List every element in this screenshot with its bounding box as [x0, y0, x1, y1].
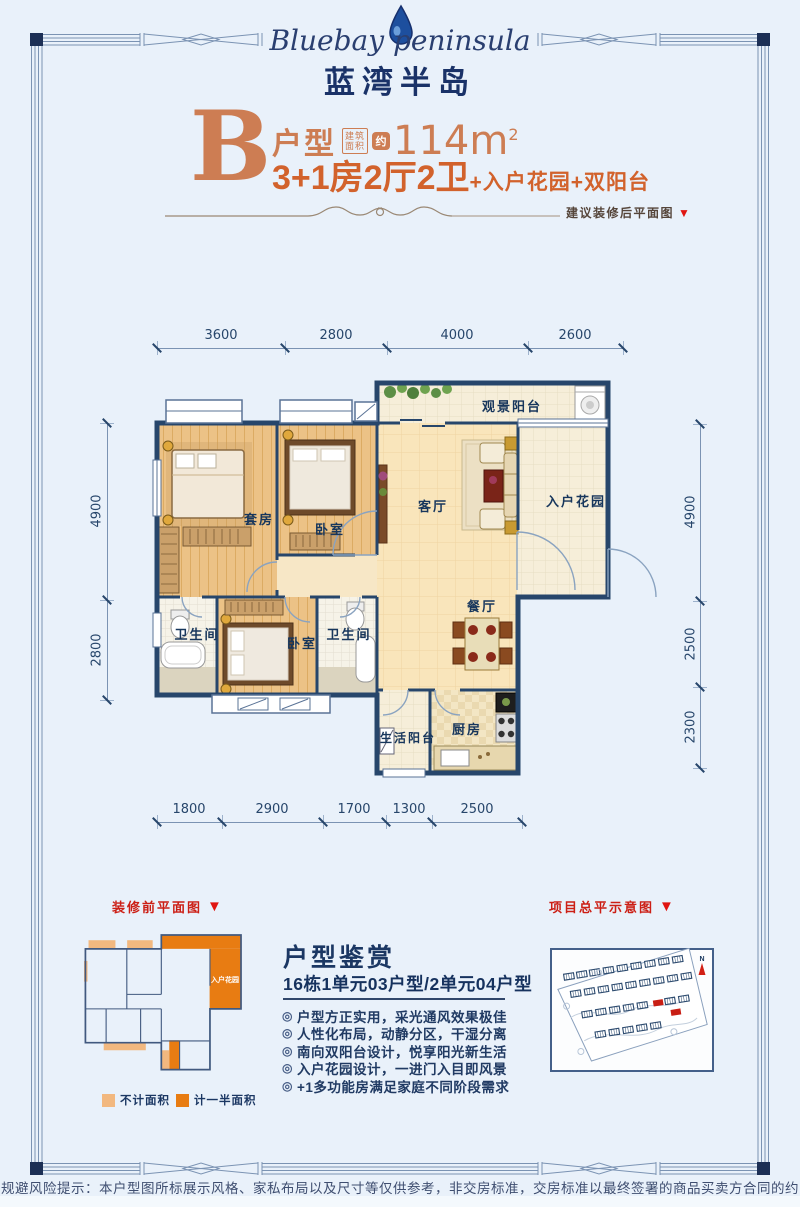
bullet-icon: ◎ [282, 1009, 293, 1023]
logo-chinese: 蓝湾半岛 [324, 57, 476, 102]
mini-floor-plan: 入户花园 [80, 930, 270, 1080]
master-plan-text: 项目总平示意图 [549, 897, 654, 916]
appreciation-title: 户型鉴赏 [283, 938, 395, 974]
bullet-item: ◎+1多功能房满足家庭不同阶段需求 [282, 1077, 509, 1095]
unit-title-line2: 3+1房2厅2卫 +入户花园+双阳台 [272, 150, 650, 199]
legend-label: 计一半面积 [194, 1092, 257, 1108]
flourish-divider [160, 202, 565, 228]
bullet-item: ◎南向双阳台设计，悦享阳光新生活 [282, 1042, 509, 1060]
room-label-suite: 套房 [244, 509, 274, 528]
master-plan-caption: 项目总平示意图 ▼ [549, 897, 676, 916]
site-plan-map: N [550, 948, 714, 1072]
before-renovation-text: 装修前平面图 [112, 897, 202, 916]
room-label-bath2: 卫生间 [326, 624, 371, 643]
area-box-line1: 建筑 [345, 131, 365, 141]
after-renovation-caption: 建议装修后平面图 ▼ [566, 204, 691, 221]
room-label-view-balcony: 观景阳台 [482, 396, 542, 415]
floor-plan [150, 380, 680, 780]
dim-line-left [107, 423, 108, 700]
bullet-icon: ◎ [282, 1044, 293, 1058]
dim-bottom-4: 1300 [392, 802, 425, 817]
room-count-text: 3+1房2厅2卫 [272, 150, 470, 199]
appreciation-subtitle: 16栋1单元03户型/2单元04户型 [283, 971, 532, 996]
dim-line-bottom [157, 822, 522, 823]
dim-bottom-3: 1700 [337, 802, 370, 817]
dim-left-2: 2800 [90, 633, 105, 666]
red-triangle-icon: ▼ [659, 899, 676, 914]
legend-half-counted: 计一半面积 [176, 1092, 257, 1108]
dim-bottom-1: 1800 [172, 802, 205, 817]
legend-swatch-dark-orange [176, 1094, 189, 1107]
legend-swatch-light-orange [102, 1094, 115, 1107]
room-label-life-balcony: 生活阳台 [380, 729, 436, 746]
bullet-icon: ◎ [282, 1061, 293, 1075]
before-renovation-caption: 装修前平面图 ▼ [112, 897, 224, 916]
room-label-living: 客厅 [418, 496, 448, 515]
after-renovation-text: 建议装修后平面图 [566, 204, 674, 221]
bullet-icon: ◎ [282, 1079, 293, 1093]
appreciation-divider [283, 998, 505, 1000]
room-floors [157, 383, 608, 773]
bullet-item: ◎入户花园设计，一进门入目即风景 [282, 1060, 509, 1078]
legend-label: 不计面积 [120, 1092, 170, 1108]
room-label-bedroom2: 卧室 [315, 519, 345, 538]
appreciation-bullets: ◎户型方正实用，采光通风效果极佳 ◎人性化布局，动静分区，干湿分离 ◎南向双阳台… [282, 1007, 509, 1095]
dim-line-right [700, 424, 701, 768]
features-text: +入户花园+双阳台 [470, 166, 651, 196]
dim-top-3: 4000 [440, 328, 473, 343]
room-label-bath1: 卫生间 [174, 624, 219, 643]
dim-bottom-5: 2500 [460, 802, 493, 817]
room-label-dining: 餐厅 [467, 596, 497, 615]
dim-right-1: 4900 [684, 495, 699, 528]
room-label-garden: 入户花园 [546, 491, 606, 510]
room-label-kitchen: 厨房 [452, 719, 482, 738]
legend-not-counted: 不计面积 [102, 1092, 170, 1108]
bullet-item: ◎户型方正实用，采光通风效果极佳 [282, 1007, 509, 1025]
dim-top-1: 3600 [204, 328, 237, 343]
bullet-item: ◎人性化布局，动静分区，干湿分离 [282, 1025, 509, 1043]
red-triangle-icon: ▼ [678, 207, 691, 219]
unit-type-letter: B [190, 104, 271, 190]
dim-bottom-2: 2900 [255, 802, 288, 817]
area-superscript: 2 [508, 125, 518, 144]
brochure-page: Bluebay peninsula 蓝湾半岛 B 户型 建筑 面积 约 114m… [0, 0, 800, 1207]
mini-plan-garden-label: 入户花园 [210, 975, 239, 984]
compass-n-label: N [699, 956, 704, 963]
dim-top-2: 2800 [319, 328, 352, 343]
dim-top-4: 2600 [558, 328, 591, 343]
bottom-strip [0, 1196, 800, 1207]
dim-right-2: 2500 [684, 627, 699, 660]
logo-english: Bluebay peninsula [269, 24, 530, 57]
room-label-bedroom3: 卧室 [287, 633, 317, 652]
approx-badge: 约 [372, 132, 390, 150]
bullet-text: +1多功能房满足家庭不同阶段需求 [297, 1076, 509, 1096]
dim-right-3: 2300 [684, 710, 699, 743]
bullet-icon: ◎ [282, 1026, 293, 1040]
dim-left-1: 4900 [90, 494, 105, 527]
red-triangle-icon: ▼ [207, 899, 224, 914]
